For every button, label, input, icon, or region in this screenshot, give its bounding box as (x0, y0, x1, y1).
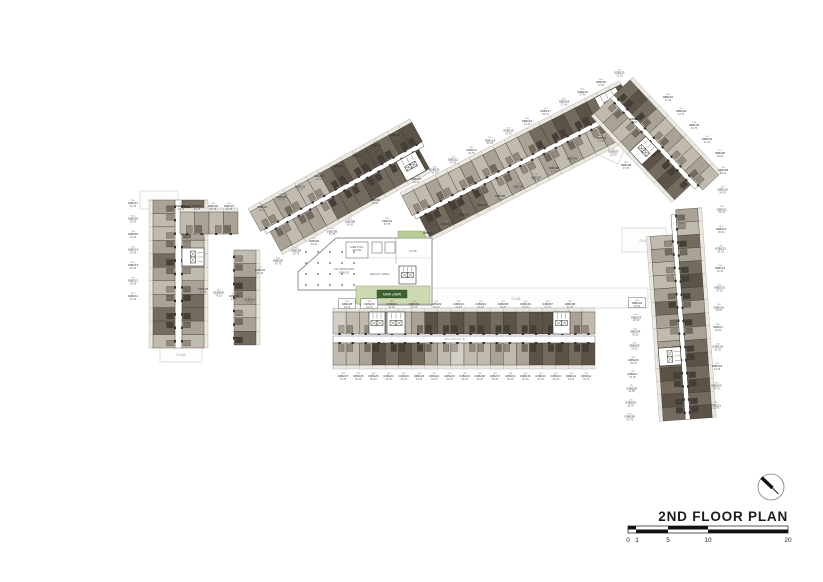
scale-bar: 0 1 5 10 20 (626, 526, 792, 544)
main-lawn-label: MAIN LAWN (383, 292, 402, 296)
unit-bathroom (426, 326, 432, 333)
unit-bathroom (574, 326, 580, 333)
unit-bathroom (225, 226, 231, 233)
unit-bathroom (685, 319, 692, 325)
unit-door (174, 259, 176, 261)
unit-door (338, 342, 340, 344)
floor-plan-canvas: SLAB SLAB SLAB SLAB MEETING ROOM CO-WORK… (0, 0, 823, 582)
unit-label: 1Bd03B22534.25 (629, 343, 640, 351)
unit-bathroom (167, 233, 174, 239)
unit-label: 1Bd+01B23041.50 (370, 197, 381, 205)
scale-segment (668, 526, 708, 530)
scale-segment (708, 530, 788, 534)
unit-door (181, 273, 183, 275)
wing-building-d-right-vertical (645, 208, 717, 421)
unit-door (587, 342, 589, 344)
unit-label: 2Bd03B20847.25 (621, 162, 632, 170)
unit-door (174, 313, 176, 315)
unit-door (683, 398, 685, 401)
unit-label: 1Bd03B22034.75 (711, 383, 722, 391)
unit-label: 1Bd01B21234.25 (128, 278, 139, 286)
unit-bathroom (184, 286, 191, 292)
building-a-label: BUILDING A (186, 237, 206, 241)
unit-label: 1Bd02B21534.75 (503, 128, 514, 136)
scale-tick-10: 10 (704, 537, 712, 544)
unit-door (365, 333, 367, 335)
unit-door (679, 267, 681, 270)
podium-room (372, 242, 382, 253)
scale-tick-20: 20 (784, 537, 792, 544)
unit-door (174, 219, 176, 221)
unit-label: 1Bd+02B21937.40 (577, 89, 588, 97)
unit-door (174, 327, 176, 329)
unit-door (482, 333, 484, 335)
scale-segment (636, 530, 668, 534)
planter-strip (398, 231, 425, 238)
unit-bathroom (184, 295, 191, 301)
balcony-strip (256, 250, 260, 345)
column-dot (329, 273, 331, 275)
unit-door (181, 313, 183, 315)
unit-door (548, 333, 550, 335)
unit-bathroom (167, 206, 174, 212)
column-dot (353, 262, 355, 264)
unit-bathroom (236, 310, 243, 316)
unit-label: 1Bd02B21734.75 (540, 108, 551, 116)
unit-door (181, 300, 183, 302)
unit-bathroom (677, 215, 684, 221)
column-dot (353, 273, 355, 275)
unit-label: 1Bd+01B20641.50 (345, 219, 356, 227)
unit-bathroom (687, 354, 694, 360)
unit-bathroom (683, 293, 690, 299)
unit-door (496, 333, 498, 335)
unit-label: 1Bd+01B21141.40 (128, 293, 138, 301)
unit-bathroom (417, 345, 423, 352)
unit-bathroom (167, 313, 174, 319)
unit-bathroom (196, 226, 202, 233)
unit-bathroom (184, 268, 191, 274)
unit-bathroom (452, 326, 458, 333)
unit-label: 1Bc03B22826.25 (626, 385, 637, 393)
unit-door (233, 283, 235, 285)
unit-bathroom (347, 326, 353, 333)
unit-bathroom (339, 345, 345, 352)
unit-door (682, 385, 684, 388)
relax-area-label: RELAX AREA (370, 272, 389, 276)
unit-door (181, 286, 183, 288)
unit-bathroom (347, 345, 353, 352)
building-e-label: BUILDING E (445, 337, 465, 341)
unit-label: 1Bd03B20234.75 (676, 108, 687, 116)
unit-label: 1Bd01B20834.25 (213, 290, 224, 298)
unit-door (233, 269, 235, 271)
unit-door (535, 333, 537, 335)
unit-door (680, 280, 682, 283)
unit-door (174, 300, 176, 302)
column-dot (305, 284, 307, 286)
unit-bathroom (531, 345, 537, 352)
unit-label: 1Bc02B21426.25 (485, 137, 496, 145)
unit-label: 1Bd04B21334.25 (551, 373, 562, 381)
unit-door (174, 273, 176, 275)
unit-bathroom (167, 286, 174, 292)
unit-door (174, 340, 176, 342)
podium-room (385, 242, 395, 253)
unit-bathroom (665, 249, 672, 255)
unit-bathroom (504, 345, 510, 352)
unit-door (672, 240, 674, 243)
unit-door (443, 333, 445, 335)
unit-label: 1Bd04B22134.25 (429, 373, 440, 381)
unit-bathroom (688, 372, 695, 378)
unit-bathroom (167, 295, 174, 301)
unit-bathroom (167, 340, 174, 346)
unit-door (230, 233, 232, 235)
unit-label: 1Bd04B22034.25 (444, 373, 455, 381)
unit-label: 1Bd+03B22336.30 (631, 314, 642, 322)
unit-door (681, 372, 683, 375)
unit-door (181, 340, 183, 342)
unit-bathroom (548, 345, 554, 352)
unit-label: 1Bd03B21134.25 (717, 206, 727, 214)
unit-bathroom (670, 328, 677, 334)
unit-door (587, 333, 589, 335)
unit-label: 1Bd01B20534.75 (327, 228, 338, 236)
unit-bathroom (687, 346, 694, 352)
unit-label: 1Bc01B20131.30 (255, 267, 266, 275)
unit-bathroom (167, 268, 174, 274)
unit-door (683, 333, 685, 336)
unit-door (681, 307, 683, 310)
unit-bathroom (689, 380, 696, 386)
unit-bathroom (236, 265, 243, 271)
unit-label: 1Bd+03B23041.75 (625, 414, 636, 422)
unit-door (685, 359, 687, 362)
unit-door (682, 320, 684, 323)
unit-bathroom (583, 345, 589, 352)
unit-bathroom (167, 214, 174, 220)
gym-label: GYM (409, 249, 417, 253)
unit-bathroom (669, 302, 676, 308)
unit-door (443, 342, 445, 344)
column-dot (329, 251, 331, 253)
unit-door (351, 342, 353, 344)
unit-label: 1Bd03B21534.25 (714, 285, 725, 293)
unit-door (174, 286, 176, 288)
unit-door (181, 327, 183, 329)
unit-bathroom (522, 326, 528, 333)
unit-label: 1Bd01B20334.75 (291, 248, 302, 256)
unit-bathroom (676, 407, 683, 413)
unit-door (675, 280, 677, 283)
unit-door (233, 310, 235, 312)
unit-bathroom (685, 328, 692, 334)
unit-label: 2Bd01B21750.75 (128, 200, 139, 208)
unit-bathroom (443, 326, 449, 333)
scale-tick-0: 0 (626, 537, 630, 544)
scale-tick-1: 1 (635, 537, 639, 544)
unit-door (233, 337, 235, 339)
column-dot (329, 262, 331, 264)
column-dot (341, 251, 343, 253)
slab-shape (432, 288, 648, 308)
unit-bathroom (504, 326, 510, 333)
unit-label: 1Bd01B21434.25 (128, 247, 139, 255)
unit-bathroom (681, 267, 688, 273)
unit-bathroom (373, 345, 379, 352)
unit-label: 1Bd01B21534.25 (128, 231, 139, 239)
unit-door (522, 333, 524, 335)
unit-label: 1Bd04B23135.25 (409, 301, 420, 309)
unit-door (351, 333, 353, 335)
unit-label: 1Bd03B22934.25 (626, 399, 637, 407)
unit-label: 1Bd+03B21236.30 (716, 226, 727, 234)
unit-bathroom (167, 241, 174, 247)
unit-label: 1Bc02B22131.30 (614, 69, 625, 77)
unit-bathroom (417, 326, 423, 333)
unit-door (456, 333, 458, 335)
unit-door (689, 411, 691, 414)
unit-bathroom (186, 226, 192, 233)
unit-door (548, 342, 550, 344)
unit-bathroom (674, 381, 681, 387)
unit-bathroom (184, 322, 191, 328)
column-dot (353, 284, 355, 286)
unit-door (675, 293, 677, 296)
unit-bathroom (496, 345, 502, 352)
unit-door (678, 333, 680, 336)
north-arrow (758, 474, 784, 500)
unit-bathroom (679, 241, 686, 247)
column-dot (305, 262, 307, 264)
unit-bathroom (667, 276, 674, 282)
unit-bathroom (452, 345, 458, 352)
unit-door (676, 306, 678, 309)
column-dot (305, 251, 307, 253)
column-dot (329, 284, 331, 286)
unit-door (417, 333, 419, 335)
unit-label: 1Bd03B21334.25 (715, 245, 726, 253)
unit-bathroom (184, 241, 191, 247)
unit-door (365, 342, 367, 344)
unit-bathroom (691, 406, 698, 412)
unit-bathroom (678, 223, 685, 229)
unit-bathroom (666, 267, 673, 273)
unit-door (561, 342, 563, 344)
unit-label: 1Bd03B21434.25 (715, 265, 726, 273)
unit-bathroom (675, 399, 682, 405)
unit-label: 1Bd04B22635.25 (353, 373, 364, 381)
unit-label: 1Bd04B22234.50 (414, 373, 425, 381)
unit-bathroom (236, 337, 243, 343)
unit-label: 1Bd04B23034.25 (386, 301, 397, 309)
unit-bathroom (470, 345, 476, 352)
unit-bathroom (215, 226, 221, 233)
unit-label: 1Bd+01B21336.30 (128, 262, 139, 270)
unit-bathroom (236, 256, 243, 262)
unit-label: 1Bd04B21534.25 (520, 373, 531, 381)
unit-door (678, 254, 680, 257)
unit-door (469, 333, 471, 335)
unit-door (677, 241, 679, 244)
unit-label: 1Bd04B21735.25 (490, 373, 501, 381)
column-dot (317, 251, 319, 253)
unit-door (233, 323, 235, 325)
unit-door (338, 333, 340, 335)
unit-door (675, 215, 677, 218)
unit-label: 1Bd04B21934.25 (459, 373, 470, 381)
unit-door (404, 342, 406, 344)
unit-label: 1Bd03B21934.25 (712, 363, 723, 371)
column-dot (317, 284, 319, 286)
unit-door (684, 346, 686, 349)
unit-door (688, 398, 690, 401)
unit-bathroom (684, 302, 691, 308)
unit-label: 1Bd03B20334.75 (689, 122, 700, 130)
unit-label: 1Bc01B20426.25 (309, 238, 320, 246)
unit-bathroom (583, 326, 589, 333)
slab-label: SLAB (176, 353, 185, 357)
column-dot (341, 284, 343, 286)
unit-bathroom (531, 326, 537, 333)
unit-label: 1Bd03B22434.25 (630, 328, 641, 336)
unit-door (469, 342, 471, 344)
unit-bathroom (668, 293, 675, 299)
unit-bathroom (478, 326, 484, 333)
unit-label: 1Bd+02B22037.40 (596, 79, 607, 87)
unit-door (174, 232, 176, 234)
unit-bathroom (670, 320, 677, 326)
unit-bathroom (184, 313, 191, 319)
unit-bathroom (339, 326, 345, 333)
unit-label: 1Bd+02B21837.40 (559, 98, 570, 106)
unit-bathroom (673, 372, 680, 378)
unit-bathroom (365, 345, 371, 352)
unit-bathroom (522, 345, 528, 352)
unit-door (687, 385, 689, 388)
scale-segment (628, 526, 636, 530)
unit-label: 1Bd03B21634.25 (714, 304, 725, 312)
unit-bathroom (443, 345, 449, 352)
unit-label: 1Bc03B20431.30 (702, 136, 713, 144)
unit-label: 1Bd04B21635.25 (505, 373, 516, 381)
unit-label: 1Bd02B21334.75 (466, 147, 477, 155)
unit-label: 1Bc03B20526.25 (715, 150, 726, 158)
unit-label: 1Bd+03B21736.30 (713, 324, 724, 332)
unit-door (233, 256, 235, 258)
unit-label: 1Bd03B21834.25 (712, 343, 723, 351)
column-dot (305, 273, 307, 275)
unit-door (680, 293, 682, 296)
unit-door (417, 342, 419, 344)
unit-door (186, 233, 188, 235)
unit-label: 1Bd03B20934.25 (718, 167, 729, 175)
unit-door (686, 372, 688, 375)
unit-label: 1Bd02B21634.75 (522, 118, 533, 126)
unit-bathroom (682, 275, 689, 281)
unit-bathroom (236, 283, 243, 289)
unit-door (677, 319, 679, 322)
unit-door (174, 246, 176, 248)
unit-bathroom (236, 319, 243, 325)
unit-label: 1Bd04B21434.25 (535, 373, 546, 381)
unit-door (509, 342, 511, 344)
unit-bathroom (167, 322, 174, 328)
building-a-north-arm (180, 208, 238, 235)
unit-bathroom (496, 326, 502, 333)
scale-tick-5: 5 (666, 537, 670, 544)
unit-door (456, 342, 458, 344)
unit-door (430, 342, 432, 344)
unit-label: 1Bd+01B21638.30 (128, 216, 139, 224)
floor-plan-page: SLAB SLAB SLAB SLAB MEETING ROOM CO-WORK… (0, 0, 823, 582)
unit-label: 1Bd+03B20137.40 (663, 94, 674, 102)
unit-label: 1Bd04B22435.25 (383, 373, 394, 381)
unit-bathroom (557, 345, 563, 352)
column-dot (341, 262, 343, 264)
unit-door (676, 228, 678, 231)
unit-label: 1Bd+03B22141.75 (711, 402, 722, 410)
unit-label: 1Bd03B21034.25 (717, 187, 728, 195)
lift-core (399, 266, 416, 284)
unit-door (496, 342, 498, 344)
unit-label: 1Bd+03B22636.30 (628, 357, 639, 365)
unit-label: 1Bd04B21835.25 (475, 373, 486, 381)
unit-bathroom (478, 345, 484, 352)
unit-bathroom (574, 345, 580, 352)
unit-label: 2Bd01B23150.75 (382, 218, 393, 226)
page-title: 2ND FLOOR PLAN (658, 509, 788, 524)
unit-door (391, 342, 393, 344)
unit-bathroom (680, 249, 687, 255)
unit-label: 1Bd04B21234.50 (566, 373, 577, 381)
unit-label: 1Bd04B21134.75 (581, 373, 591, 381)
unit-bathroom (167, 260, 174, 266)
balcony-strip (149, 200, 153, 348)
column-dot (317, 273, 319, 275)
unit-door (378, 342, 380, 344)
column-dot (317, 262, 319, 264)
coworking-label2: SPACE (339, 270, 349, 274)
unit-bathroom (470, 326, 476, 333)
unit-label: 1Bd01B20234.75 (273, 257, 284, 265)
unit-door (215, 233, 217, 235)
unit-door (574, 342, 576, 344)
unit-bathroom (426, 345, 432, 352)
unit-door (674, 267, 676, 270)
unit-door (574, 333, 576, 335)
unit-label: 1Bd04B22335.25 (399, 373, 410, 381)
unit-label: 1Bd04B22734.75 (338, 373, 349, 381)
unit-door (509, 333, 511, 335)
unit-door (535, 342, 537, 344)
unit-bathroom (690, 398, 697, 404)
unit-door (684, 412, 686, 415)
unit-door (673, 253, 675, 256)
slab-label: SLAB (511, 297, 520, 301)
unit-door (482, 342, 484, 344)
unit-door (201, 233, 203, 235)
unit-bathroom (400, 345, 406, 352)
unit-label: 1Bd03B22734.25 (627, 371, 638, 379)
meeting-room-label2: ROOM (353, 248, 362, 252)
unit-bathroom (664, 241, 671, 247)
unit-label: 1Bd04B22535.25 (368, 373, 379, 381)
unit-bathroom (391, 345, 397, 352)
unit-bathroom (184, 340, 191, 346)
unit-door (522, 342, 524, 344)
